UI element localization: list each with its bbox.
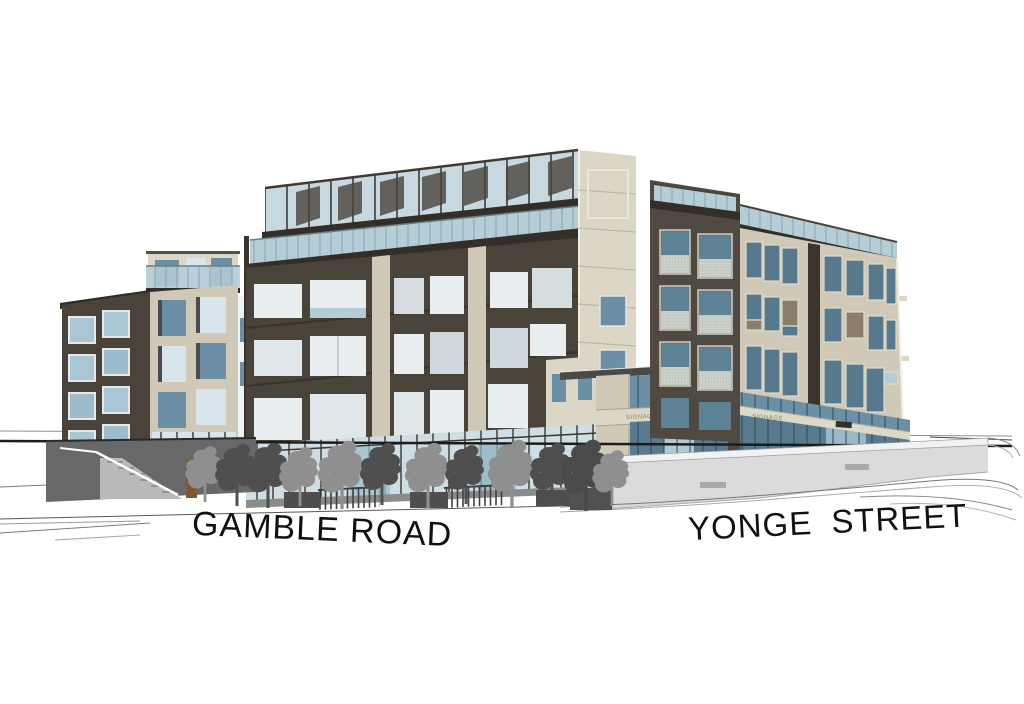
beige-pilaster: [468, 246, 486, 436]
rendering-canvas: SIGNAGE: [0, 0, 1024, 704]
east-block: SIGNAGE: [650, 180, 914, 472]
dark-sign-panel: [836, 421, 852, 428]
facade-openings: [254, 268, 572, 440]
main-facade: [244, 236, 578, 448]
beige-pilaster: [372, 255, 390, 440]
street-label-yonge: YONGE STREET: [687, 496, 968, 547]
street-label-gamble: GAMBLE ROAD: [191, 505, 453, 554]
dark-corner-tower: [650, 180, 740, 442]
rendering-svg: SIGNAGE: [0, 0, 1024, 704]
